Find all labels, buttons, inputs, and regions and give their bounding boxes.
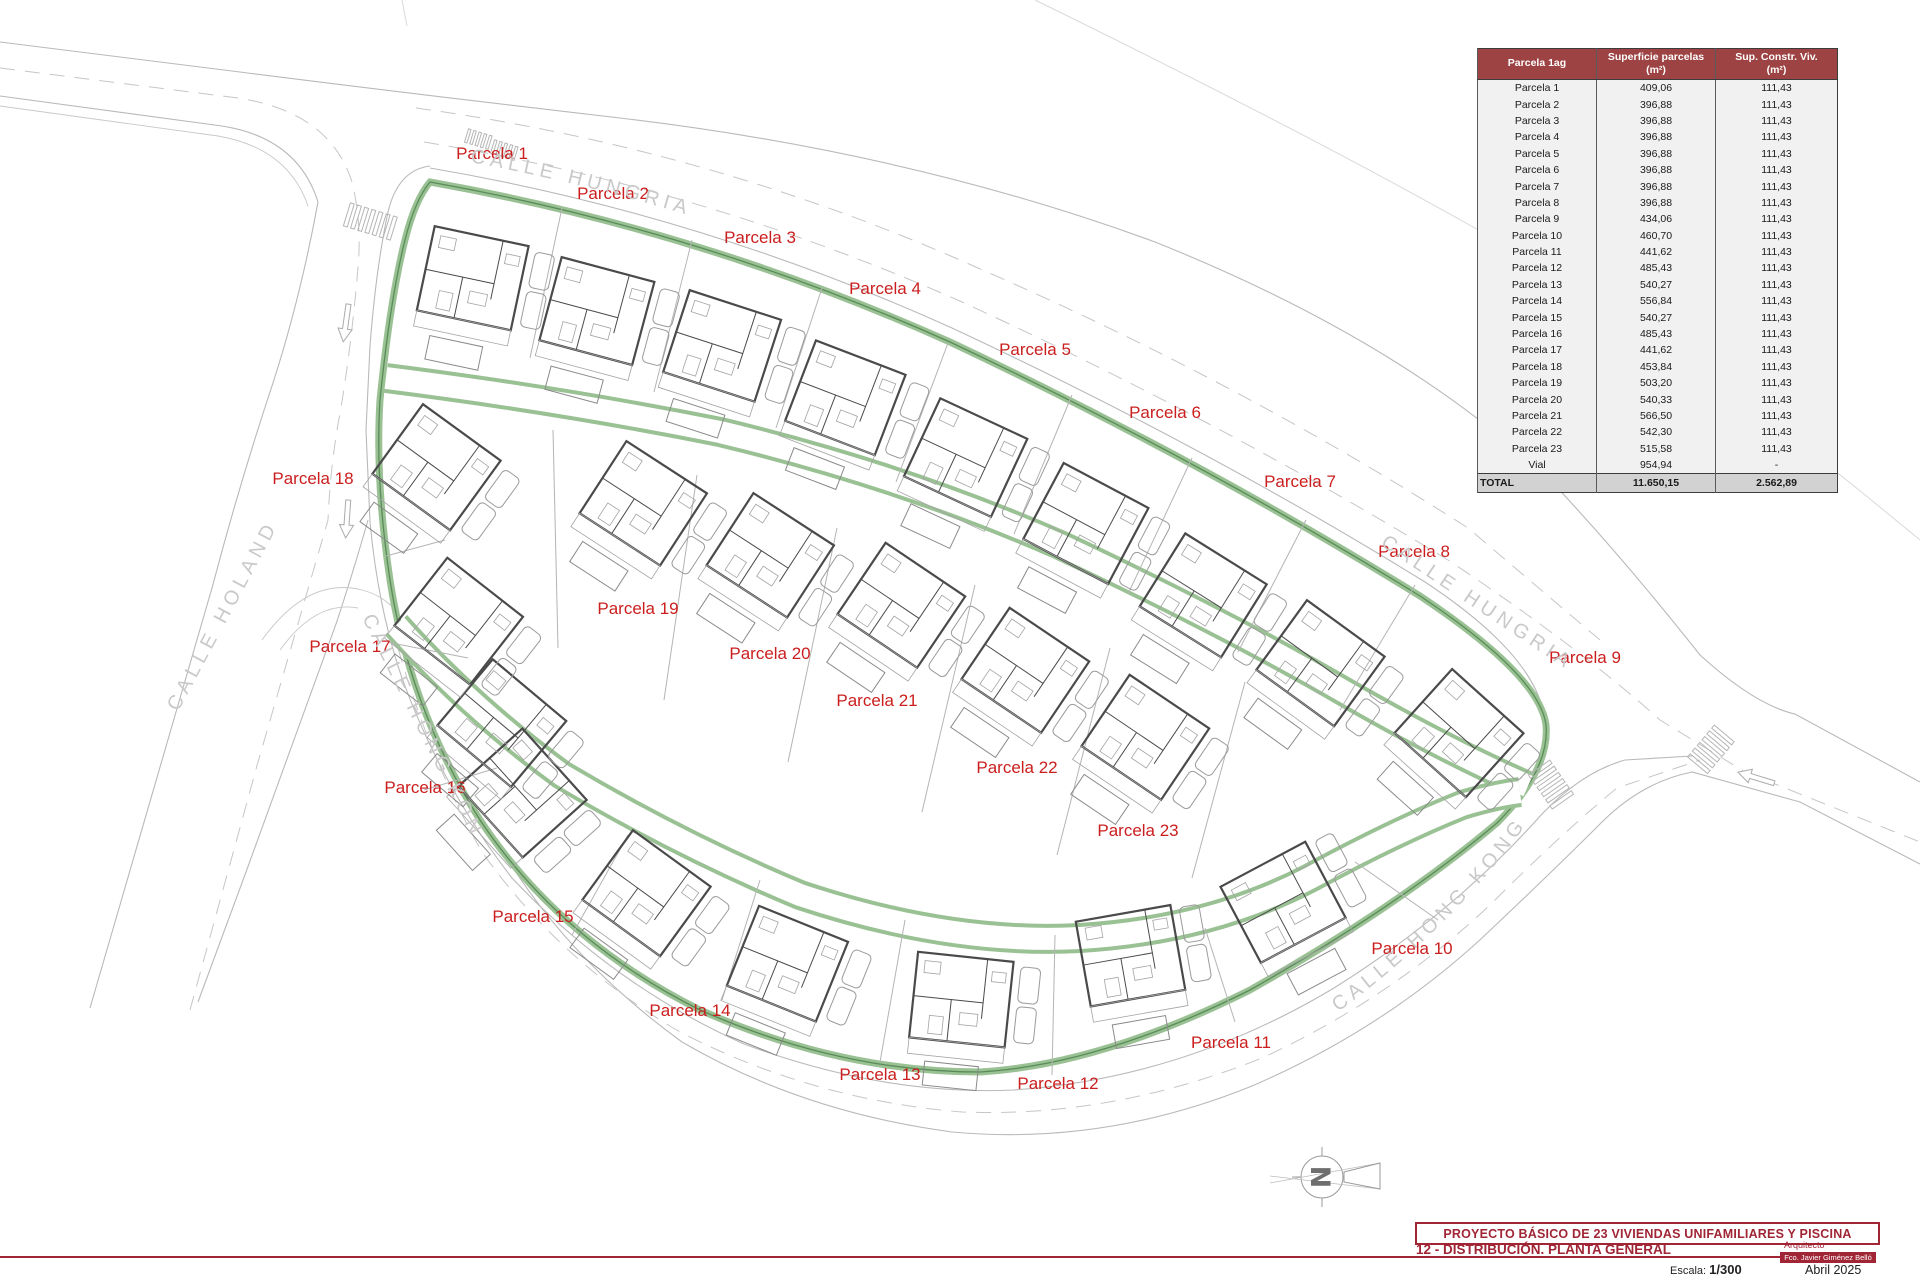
parcel-label: Parcela 19 bbox=[597, 599, 678, 618]
table-cell: 111,43 bbox=[1716, 244, 1838, 260]
parcel-label: Parcela 4 bbox=[849, 279, 921, 298]
table-cell: 396,88 bbox=[1597, 96, 1716, 112]
table-row: Parcela 22542,30111,43 bbox=[1478, 424, 1838, 440]
table-cell: 111,43 bbox=[1716, 391, 1838, 407]
table-row: Parcela 21566,50111,43 bbox=[1478, 408, 1838, 424]
table-cell: 111,43 bbox=[1716, 309, 1838, 325]
table-row: Parcela 1409,06111,43 bbox=[1478, 80, 1838, 97]
scale-label: Escala: bbox=[1670, 1265, 1706, 1277]
table-cell: 111,43 bbox=[1716, 80, 1838, 97]
table-row: Parcela 19503,20111,43 bbox=[1478, 375, 1838, 391]
table-cell: Parcela 11 bbox=[1478, 244, 1597, 260]
table-cell: 111,43 bbox=[1716, 96, 1838, 112]
table-cell: Parcela 22 bbox=[1478, 424, 1597, 440]
table-cell: 111,43 bbox=[1716, 375, 1838, 391]
table-cell: Parcela 23 bbox=[1478, 441, 1597, 457]
table-cell: Parcela 3 bbox=[1478, 113, 1597, 129]
table-cell: 503,20 bbox=[1597, 375, 1716, 391]
scale-value: 1/300 bbox=[1709, 1262, 1742, 1277]
table-cell: Parcela 1 bbox=[1478, 80, 1597, 97]
table-cell: Parcela 20 bbox=[1478, 391, 1597, 407]
table-row: Parcela 11441,62111,43 bbox=[1478, 244, 1838, 260]
table-cell: Parcela 2 bbox=[1478, 96, 1597, 112]
table-cell: 111,43 bbox=[1716, 129, 1838, 145]
table-cell: 441,62 bbox=[1597, 342, 1716, 358]
table-row: Parcela 5396,88111,43 bbox=[1478, 146, 1838, 162]
north-arrow-icon: N bbox=[1270, 1147, 1380, 1207]
table-cell: 460,70 bbox=[1597, 228, 1716, 244]
table-cell: 396,88 bbox=[1597, 146, 1716, 162]
table-cell: 515,58 bbox=[1597, 441, 1716, 457]
table-cell: 542,30 bbox=[1597, 424, 1716, 440]
table-row: Parcela 12485,43111,43 bbox=[1478, 260, 1838, 276]
table-header-row: Parcela 1ag Superficie parcelas (m²) Sup… bbox=[1478, 49, 1838, 80]
table-cell: 111,43 bbox=[1716, 424, 1838, 440]
table-cell: 111,43 bbox=[1716, 359, 1838, 375]
col-header-line: Sup. Constr. Viv. bbox=[1716, 51, 1837, 64]
table-cell: 396,88 bbox=[1597, 162, 1716, 178]
table-cell: 396,88 bbox=[1597, 195, 1716, 211]
table-cell: Parcela 13 bbox=[1478, 277, 1597, 293]
parcel-label: Parcela 21 bbox=[836, 691, 917, 710]
table-row: Parcela 6396,88111,43 bbox=[1478, 162, 1838, 178]
table-row: Parcela 23515,58111,43 bbox=[1478, 441, 1838, 457]
table-cell: 954,94 bbox=[1597, 457, 1716, 474]
parcel-label: Parcela 15 bbox=[492, 907, 573, 926]
surface-table: Parcela 1ag Superficie parcelas (m²) Sup… bbox=[1477, 48, 1838, 493]
parcel-label: Parcela 11 bbox=[1191, 1033, 1271, 1052]
table-cell: Parcela 8 bbox=[1478, 195, 1597, 211]
table-cell: 111,43 bbox=[1716, 326, 1838, 342]
table-cell: Parcela 21 bbox=[1478, 408, 1597, 424]
table-cell: Vial bbox=[1478, 457, 1597, 474]
table-cell: 396,88 bbox=[1597, 178, 1716, 194]
table-cell: 111,43 bbox=[1716, 293, 1838, 309]
table-cell: Parcela 7 bbox=[1478, 178, 1597, 194]
parcel-label: Parcela 12 bbox=[1017, 1074, 1098, 1093]
table-row: Parcela 13540,27111,43 bbox=[1478, 277, 1838, 293]
col-header-line: Superficie parcelas bbox=[1597, 51, 1715, 64]
table-row: Parcela 20540,33111,43 bbox=[1478, 391, 1838, 407]
table-row: Parcela 17441,62111,43 bbox=[1478, 342, 1838, 358]
scale: Escala: 1/300 bbox=[1670, 1262, 1742, 1277]
date: Abril 2025 bbox=[1805, 1263, 1861, 1277]
table-cell: 111,43 bbox=[1716, 113, 1838, 129]
table-row: Parcela 3396,88111,43 bbox=[1478, 113, 1838, 129]
total-label: TOTAL bbox=[1478, 474, 1597, 493]
table-cell: 111,43 bbox=[1716, 162, 1838, 178]
table-cell: 453,84 bbox=[1597, 359, 1716, 375]
table-cell: Parcela 5 bbox=[1478, 146, 1597, 162]
parcel-label: Parcela 18 bbox=[272, 469, 353, 488]
crosswalk bbox=[1688, 725, 1735, 774]
table-cell: 111,43 bbox=[1716, 260, 1838, 276]
parcel-label: Parcela 3 bbox=[724, 228, 796, 247]
parcel-label: Parcela 23 bbox=[1097, 821, 1178, 840]
table-row: Parcela 2396,88111,43 bbox=[1478, 96, 1838, 112]
street-label: CALLE HOLANDA bbox=[0, 0, 283, 714]
parcel-label: Parcela 6 bbox=[1129, 403, 1201, 422]
parcel-label: Parcela 14 bbox=[649, 1001, 730, 1020]
table-cell: Parcela 12 bbox=[1478, 260, 1597, 276]
architect-name: Fco. Javier Giménez Belló bbox=[1780, 1252, 1876, 1263]
col-header-line: (m²) bbox=[1716, 64, 1837, 77]
table-row: Parcela 9434,06111,43 bbox=[1478, 211, 1838, 227]
north-letter: N bbox=[1307, 1166, 1338, 1189]
parcel-label: Parcela 13 bbox=[839, 1065, 920, 1084]
table-row: Parcela 4396,88111,43 bbox=[1478, 129, 1838, 145]
table-cell: 396,88 bbox=[1597, 113, 1716, 129]
parcel-label: Parcela 20 bbox=[729, 644, 810, 663]
table-row: Parcela 15540,27111,43 bbox=[1478, 309, 1838, 325]
sheet-title: 12 - DISTRIBUCIÓN. PLANTA GENERAL bbox=[1416, 1242, 1671, 1257]
table-cell: 111,43 bbox=[1716, 342, 1838, 358]
table-cell: 441,62 bbox=[1597, 244, 1716, 260]
table-cell: 111,43 bbox=[1716, 441, 1838, 457]
table-cell: 396,88 bbox=[1597, 129, 1716, 145]
col-header-line: (m²) bbox=[1597, 64, 1715, 77]
table-cell: Parcela 15 bbox=[1478, 309, 1597, 325]
table-cell: 111,43 bbox=[1716, 195, 1838, 211]
table-cell: Parcela 18 bbox=[1478, 359, 1597, 375]
total-construida: 2.562,89 bbox=[1716, 474, 1838, 493]
table-cell: Parcela 17 bbox=[1478, 342, 1597, 358]
table-cell: 556,84 bbox=[1597, 293, 1716, 309]
table-row: Parcela 14556,84111,43 bbox=[1478, 293, 1838, 309]
table-cell: 409,06 bbox=[1597, 80, 1716, 97]
parcel-label: Parcela 7 bbox=[1264, 472, 1336, 491]
table-cell: Parcela 14 bbox=[1478, 293, 1597, 309]
table-cell: 111,43 bbox=[1716, 178, 1838, 194]
table-cell: 111,43 bbox=[1716, 228, 1838, 244]
total-superficie: 11.650,15 bbox=[1597, 474, 1716, 493]
table-cell: Parcela 4 bbox=[1478, 129, 1597, 145]
table-row: Parcela 18453,84111,43 bbox=[1478, 359, 1838, 375]
table-cell: 540,33 bbox=[1597, 391, 1716, 407]
table-cell: 540,27 bbox=[1597, 309, 1716, 325]
table-cell: Parcela 10 bbox=[1478, 228, 1597, 244]
table-cell: 485,43 bbox=[1597, 260, 1716, 276]
table-row: Parcela 7396,88111,43 bbox=[1478, 178, 1838, 194]
sheet-footer-line bbox=[0, 1256, 1786, 1258]
table-cell: Parcela 19 bbox=[1478, 375, 1597, 391]
table-row: Parcela 10460,70111,43 bbox=[1478, 228, 1838, 244]
table-cell: 540,27 bbox=[1597, 277, 1716, 293]
table-cell: 434,06 bbox=[1597, 211, 1716, 227]
architect-label: Arquitecto bbox=[1784, 1240, 1825, 1250]
parcel-label: Parcela 5 bbox=[999, 340, 1071, 359]
table-total-row: TOTAL 11.650,15 2.562,89 bbox=[1478, 474, 1838, 493]
col-header-superficie: Superficie parcelas (m²) bbox=[1597, 49, 1716, 80]
table-cell: Parcela 6 bbox=[1478, 162, 1597, 178]
col-header-construida: Sup. Constr. Viv. (m²) bbox=[1716, 49, 1838, 80]
table-cell: 111,43 bbox=[1716, 277, 1838, 293]
table-cell: 111,43 bbox=[1716, 408, 1838, 424]
table-cell: 566,50 bbox=[1597, 408, 1716, 424]
table-cell: 111,43 bbox=[1716, 146, 1838, 162]
traffic-arrow bbox=[339, 500, 356, 539]
table-cell: Parcela 9 bbox=[1478, 211, 1597, 227]
table-row: Parcela 8396,88111,43 bbox=[1478, 195, 1838, 211]
table-cell: 485,43 bbox=[1597, 326, 1716, 342]
table-cell: 111,43 bbox=[1716, 211, 1838, 227]
parcel-label: Parcela 22 bbox=[976, 758, 1057, 777]
table-cell: Parcela 16 bbox=[1478, 326, 1597, 342]
table-row: Vial954,94- bbox=[1478, 457, 1838, 474]
table-cell: - bbox=[1716, 457, 1838, 474]
col-header-parcela: Parcela 1ag bbox=[1478, 49, 1597, 80]
project-title: PROYECTO BÁSICO DE 23 VIVIENDAS UNIFAMIL… bbox=[1443, 1227, 1851, 1241]
table-row: Parcela 16485,43111,43 bbox=[1478, 326, 1838, 342]
